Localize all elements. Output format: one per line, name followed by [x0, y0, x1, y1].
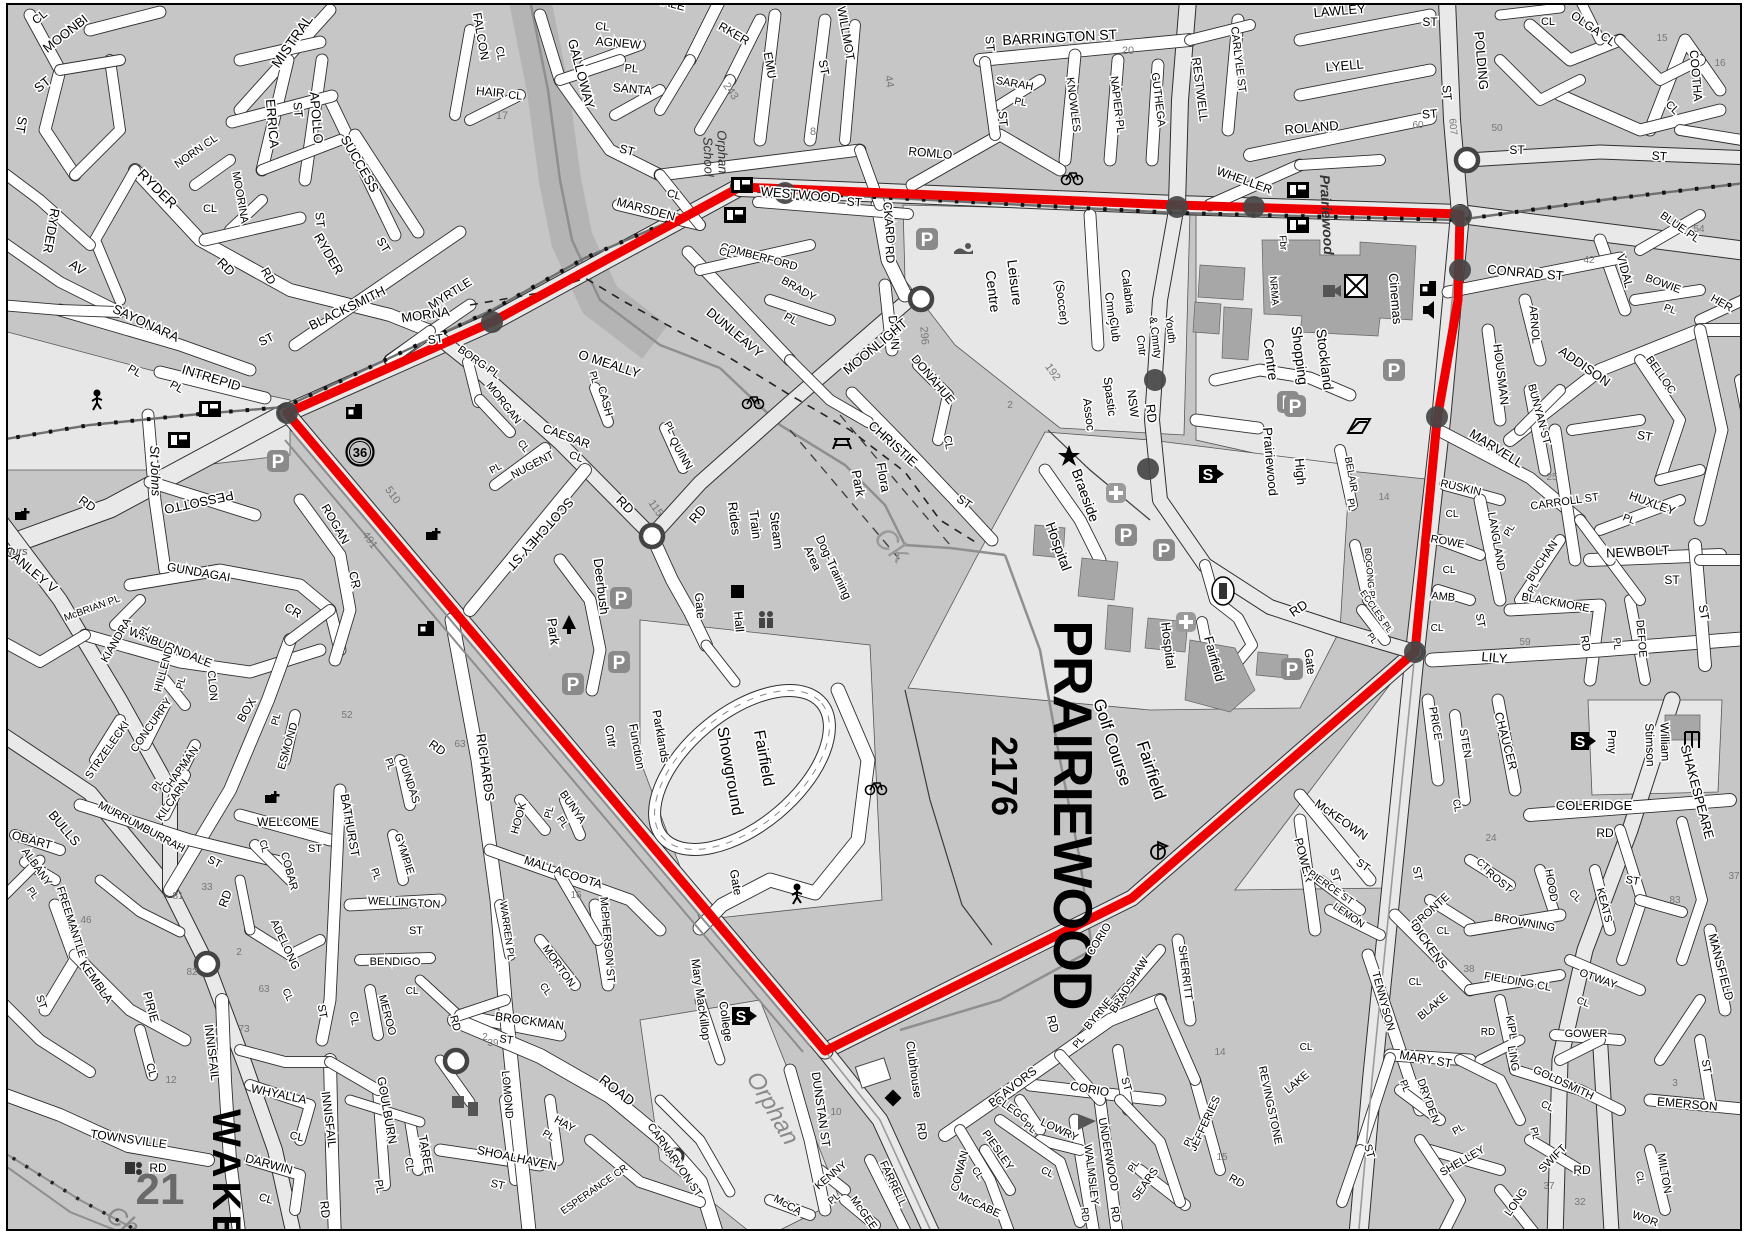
svg-text:296: 296	[917, 326, 931, 345]
svg-text:ST: ST	[1473, 613, 1487, 629]
svg-text:83: 83	[1669, 895, 1681, 906]
svg-text:RD: RD	[317, 1200, 333, 1219]
svg-text:ST: ST	[308, 843, 322, 855]
svg-text:PL: PL	[624, 62, 638, 75]
svg-text:17: 17	[496, 110, 508, 122]
svg-text:P: P	[1286, 660, 1299, 681]
svg-text:P: P	[615, 589, 628, 610]
svg-text:P: P	[1388, 361, 1401, 382]
svg-text:Cntr: Cntr	[1134, 335, 1148, 357]
svg-text:ST: ST	[1421, 106, 1438, 121]
svg-text:59: 59	[1519, 637, 1531, 648]
svg-text:ST: ST	[1696, 604, 1713, 622]
svg-text:P: P	[1120, 526, 1133, 547]
svg-text:ST: ST	[290, 101, 305, 118]
svg-text:WAKELEY: WAKELEY	[204, 1109, 248, 1240]
svg-text:2: 2	[1007, 400, 1013, 411]
svg-text:16: 16	[1714, 58, 1726, 69]
svg-text:60: 60	[1412, 120, 1424, 131]
svg-text:CL: CL	[1446, 509, 1459, 520]
svg-text:50: 50	[1491, 123, 1503, 134]
svg-text:33: 33	[201, 882, 213, 893]
svg-text:COLERIDGE: COLERIDGE	[1556, 798, 1633, 813]
svg-text:52: 52	[341, 710, 353, 721]
svg-text:S: S	[1575, 734, 1586, 751]
svg-text:PL: PL	[1610, 637, 1622, 651]
svg-text:RD: RD	[882, 245, 897, 264]
svg-text:William: William	[1657, 722, 1672, 761]
svg-text:15: 15	[1656, 33, 1668, 44]
svg-text:CL: CL	[1443, 565, 1456, 576]
svg-text:CL: CL	[595, 20, 610, 33]
svg-text:ST: ST	[499, 1033, 515, 1047]
svg-text:ST: ST	[982, 35, 997, 52]
svg-text:82: 82	[186, 967, 198, 978]
svg-text:RD: RD	[1143, 403, 1160, 423]
svg-text:ST: ST	[312, 211, 327, 228]
svg-text:ST: ST	[1636, 428, 1654, 445]
svg-text:PL: PL	[1344, 498, 1357, 512]
svg-text:ST: ST	[1699, 1059, 1713, 1075]
svg-text:Fbr: Fbr	[1276, 235, 1288, 252]
svg-text:ST: ST	[315, 1004, 329, 1020]
svg-text:CL: CL	[1633, 1170, 1646, 1185]
svg-text:Pmy: Pmy	[1605, 730, 1620, 754]
svg-text:81: 81	[172, 891, 184, 902]
svg-text:CL: CL	[1409, 977, 1422, 988]
svg-text:Stimson: Stimson	[1642, 723, 1658, 767]
svg-text:ST: ST	[1509, 143, 1525, 157]
svg-text:S: S	[736, 1009, 747, 1026]
svg-text:RD: RD	[1078, 1207, 1091, 1223]
svg-text:Gate: Gate	[692, 592, 708, 619]
svg-text:P: P	[1158, 541, 1171, 562]
svg-text:32: 32	[1574, 1197, 1586, 1208]
svg-text:ST: ST	[13, 115, 31, 134]
svg-text:CL: CL	[203, 203, 217, 215]
svg-text:St Johns: St Johns	[147, 445, 164, 497]
svg-text:ST: ST	[1664, 573, 1680, 587]
svg-text:S: S	[1203, 467, 1214, 484]
svg-text:CL: CL	[1431, 623, 1444, 634]
svg-text:CL: CL	[1437, 926, 1450, 937]
svg-text:P: P	[272, 452, 285, 473]
svg-text:39: 39	[487, 1038, 499, 1049]
svg-text:AMB: AMB	[1431, 590, 1456, 604]
svg-text:RD: RD	[1596, 826, 1614, 840]
svg-text:RD: RD	[149, 1161, 167, 1175]
svg-text:38: 38	[1463, 964, 1475, 975]
svg-text:37: 37	[1543, 1181, 1555, 1192]
svg-text:School: School	[700, 137, 716, 178]
svg-text:44: 44	[882, 74, 896, 88]
svg-text:54: 54	[1693, 224, 1705, 235]
svg-text:LILY: LILY	[1481, 649, 1508, 666]
svg-text:P: P	[1289, 397, 1302, 418]
svg-text:ST: ST	[409, 925, 423, 937]
svg-text:RD: RD	[1573, 1163, 1591, 1177]
svg-text:10: 10	[830, 1107, 842, 1118]
svg-text:PL: PL	[1013, 96, 1027, 109]
svg-text:73: 73	[238, 1024, 250, 1035]
svg-text:3: 3	[1672, 1078, 1678, 1089]
svg-text:CL: CL	[402, 1157, 416, 1173]
svg-text:CL: CL	[941, 435, 955, 451]
svg-text:ST: ST	[816, 59, 833, 77]
svg-text:16: 16	[570, 890, 582, 901]
svg-text:CL: CL	[493, 46, 507, 62]
svg-text:14: 14	[1214, 1047, 1226, 1058]
svg-text:24: 24	[1485, 833, 1497, 844]
svg-text:25: 25	[1546, 472, 1558, 483]
svg-text:63: 63	[454, 739, 466, 750]
svg-text:CL: CL	[406, 986, 419, 997]
svg-text:ST: ST	[427, 331, 445, 347]
svg-text:ST: ST	[995, 110, 1010, 127]
svg-text:ST: ST	[1439, 84, 1454, 101]
svg-text:P: P	[613, 653, 626, 674]
svg-text:15: 15	[1216, 1152, 1228, 1163]
svg-text:ST: ST	[1422, 15, 1438, 29]
svg-text:CL: CL	[508, 89, 523, 102]
svg-text:ST: ST	[1410, 866, 1424, 882]
svg-text:PL: PL	[372, 1179, 386, 1194]
svg-text:12: 12	[165, 1075, 177, 1086]
svg-text:CL: CL	[347, 1011, 361, 1027]
svg-text:HAIR: HAIR	[475, 84, 505, 100]
svg-text:2: 2	[236, 947, 242, 958]
svg-text:Hall: Hall	[731, 611, 747, 633]
svg-text:2: 2	[482, 1032, 488, 1043]
svg-text:42: 42	[1583, 255, 1595, 266]
svg-text:14: 14	[1378, 492, 1390, 503]
svg-text:46: 46	[80, 915, 92, 926]
svg-text:2176: 2176	[984, 736, 1025, 816]
svg-text:ST: ST	[846, 194, 863, 209]
svg-text:36: 36	[353, 445, 367, 460]
svg-text:CL: CL	[1450, 798, 1463, 813]
svg-text:8: 8	[810, 126, 816, 138]
svg-text:ST: ST	[1651, 148, 1668, 163]
svg-text:ST: ST	[1625, 874, 1641, 888]
svg-text:RD: RD	[1481, 1027, 1495, 1038]
svg-text:CL: CL	[1300, 1042, 1313, 1053]
svg-text:CL: CL	[1541, 16, 1555, 28]
svg-text:GOWER: GOWER	[1565, 1028, 1608, 1040]
svg-text:BENDIGO: BENDIGO	[370, 956, 421, 968]
svg-text:P: P	[567, 675, 580, 696]
svg-text:P: P	[921, 230, 934, 251]
svg-text:20: 20	[1122, 45, 1134, 57]
svg-text:RD: RD	[914, 1122, 930, 1141]
svg-text:37: 37	[1728, 871, 1740, 882]
svg-text:63: 63	[258, 984, 270, 995]
svg-text:High: High	[1292, 458, 1309, 486]
svg-text:607: 607	[1446, 118, 1458, 136]
svg-text:WELCOME: WELCOME	[257, 815, 319, 829]
